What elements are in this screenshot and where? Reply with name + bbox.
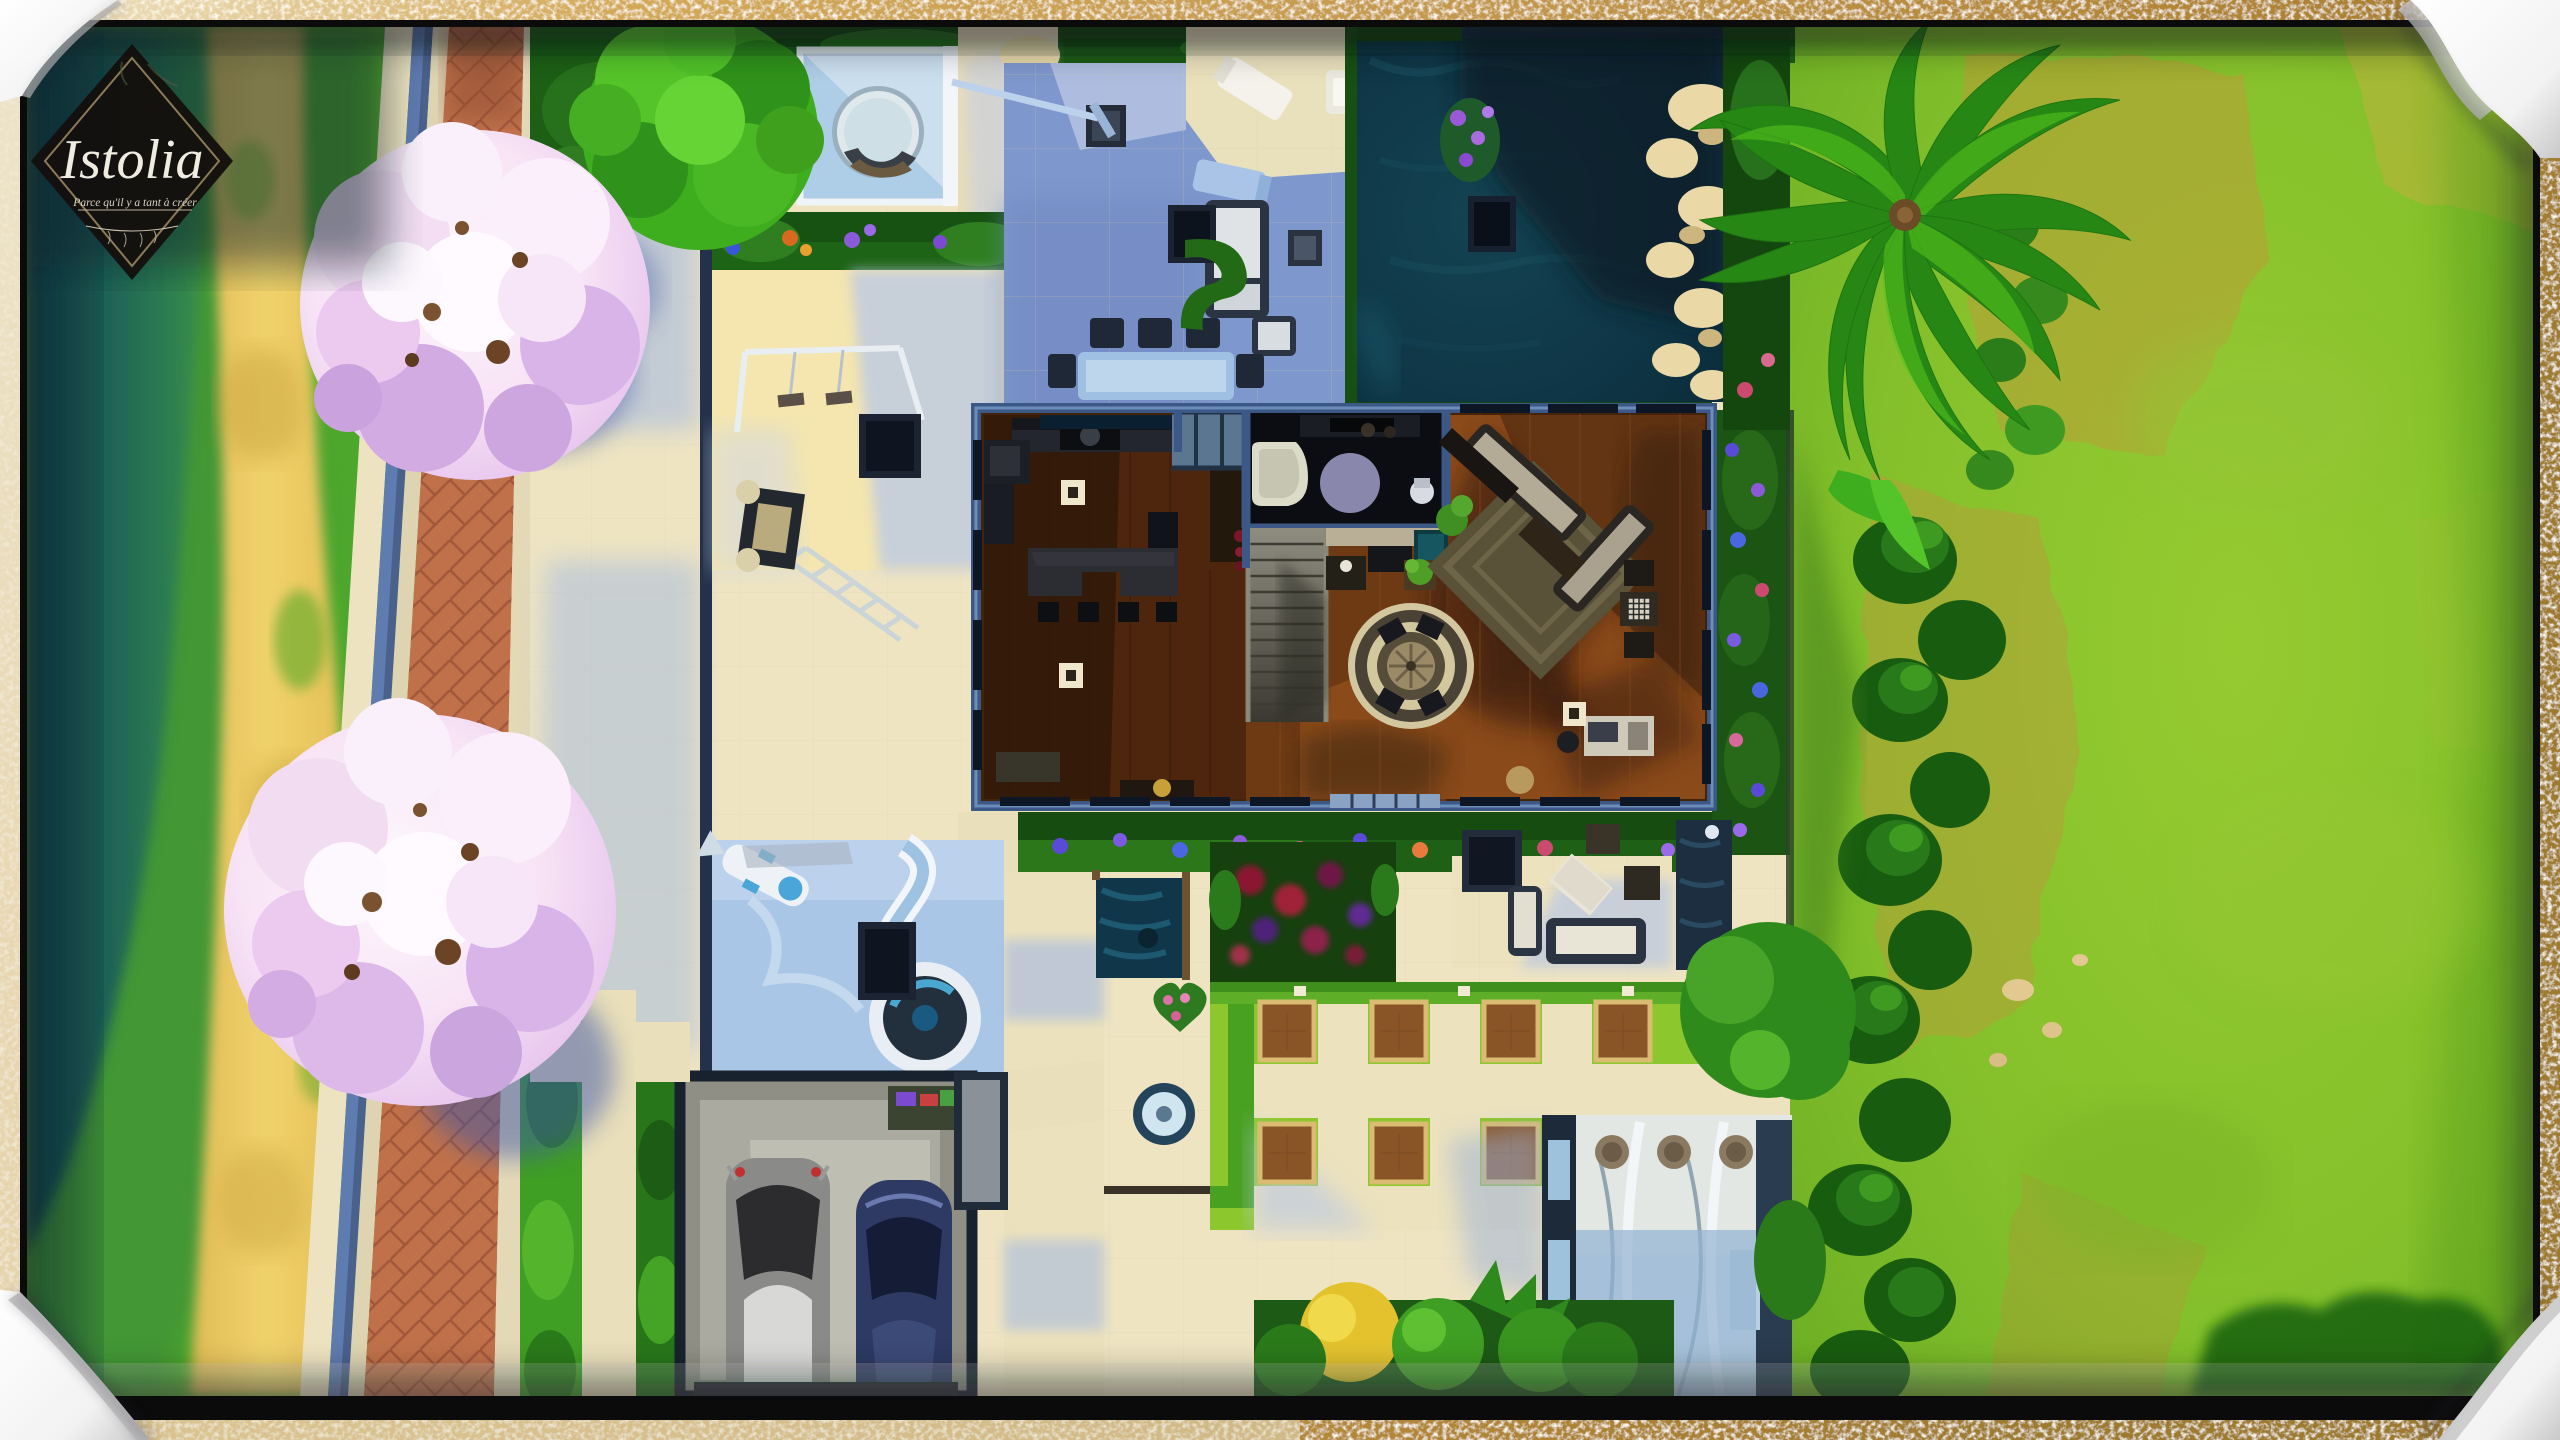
svg-text:Parce qu'il y a tant à créer: Parce qu'il y a tant à créer bbox=[72, 197, 197, 209]
svg-text:Istolia: Istolia bbox=[59, 129, 203, 191]
